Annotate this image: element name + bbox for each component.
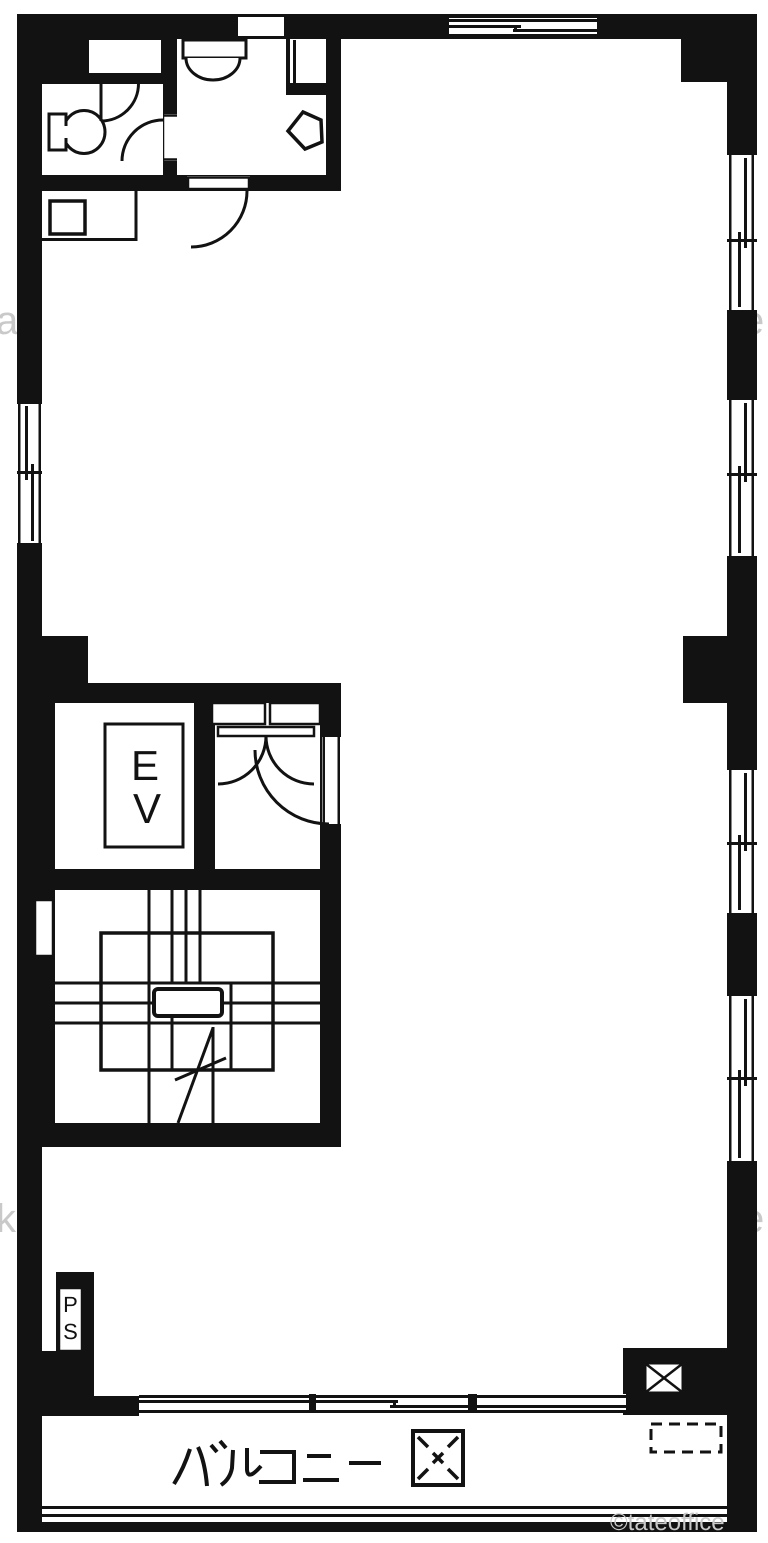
svg-text:V: V bbox=[133, 785, 161, 832]
svg-text:©tateoffice: ©tateoffice bbox=[610, 1509, 725, 1536]
svg-text:E: E bbox=[131, 742, 159, 789]
svg-text:S: S bbox=[63, 1319, 78, 1344]
svg-text:P: P bbox=[63, 1292, 78, 1317]
